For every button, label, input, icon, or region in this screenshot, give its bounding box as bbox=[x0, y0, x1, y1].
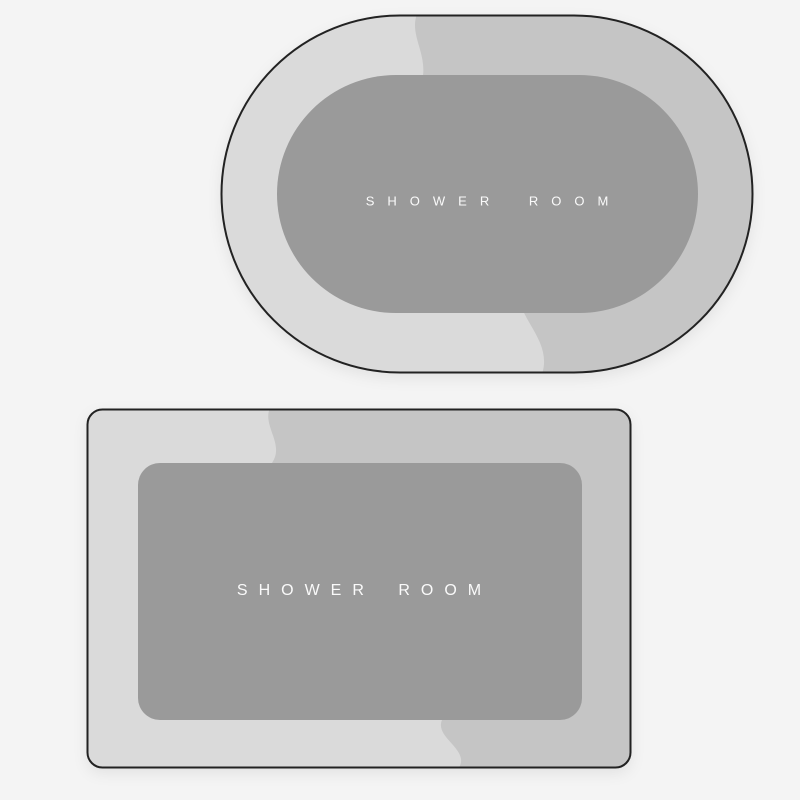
page: { "image": { "background_color": "#f4f4f… bbox=[0, 0, 800, 800]
shower-room-label-rectangle: SHOWER ROOM bbox=[86, 582, 632, 600]
product-image: SHOWER ROOM SHOWER ROOM bbox=[0, 0, 800, 800]
bath-mat-rectangle: SHOWER ROOM bbox=[86, 408, 632, 769]
shower-room-label-oval: SHOWER ROOM bbox=[220, 194, 754, 209]
bath-mat-oval: SHOWER ROOM bbox=[220, 14, 754, 374]
